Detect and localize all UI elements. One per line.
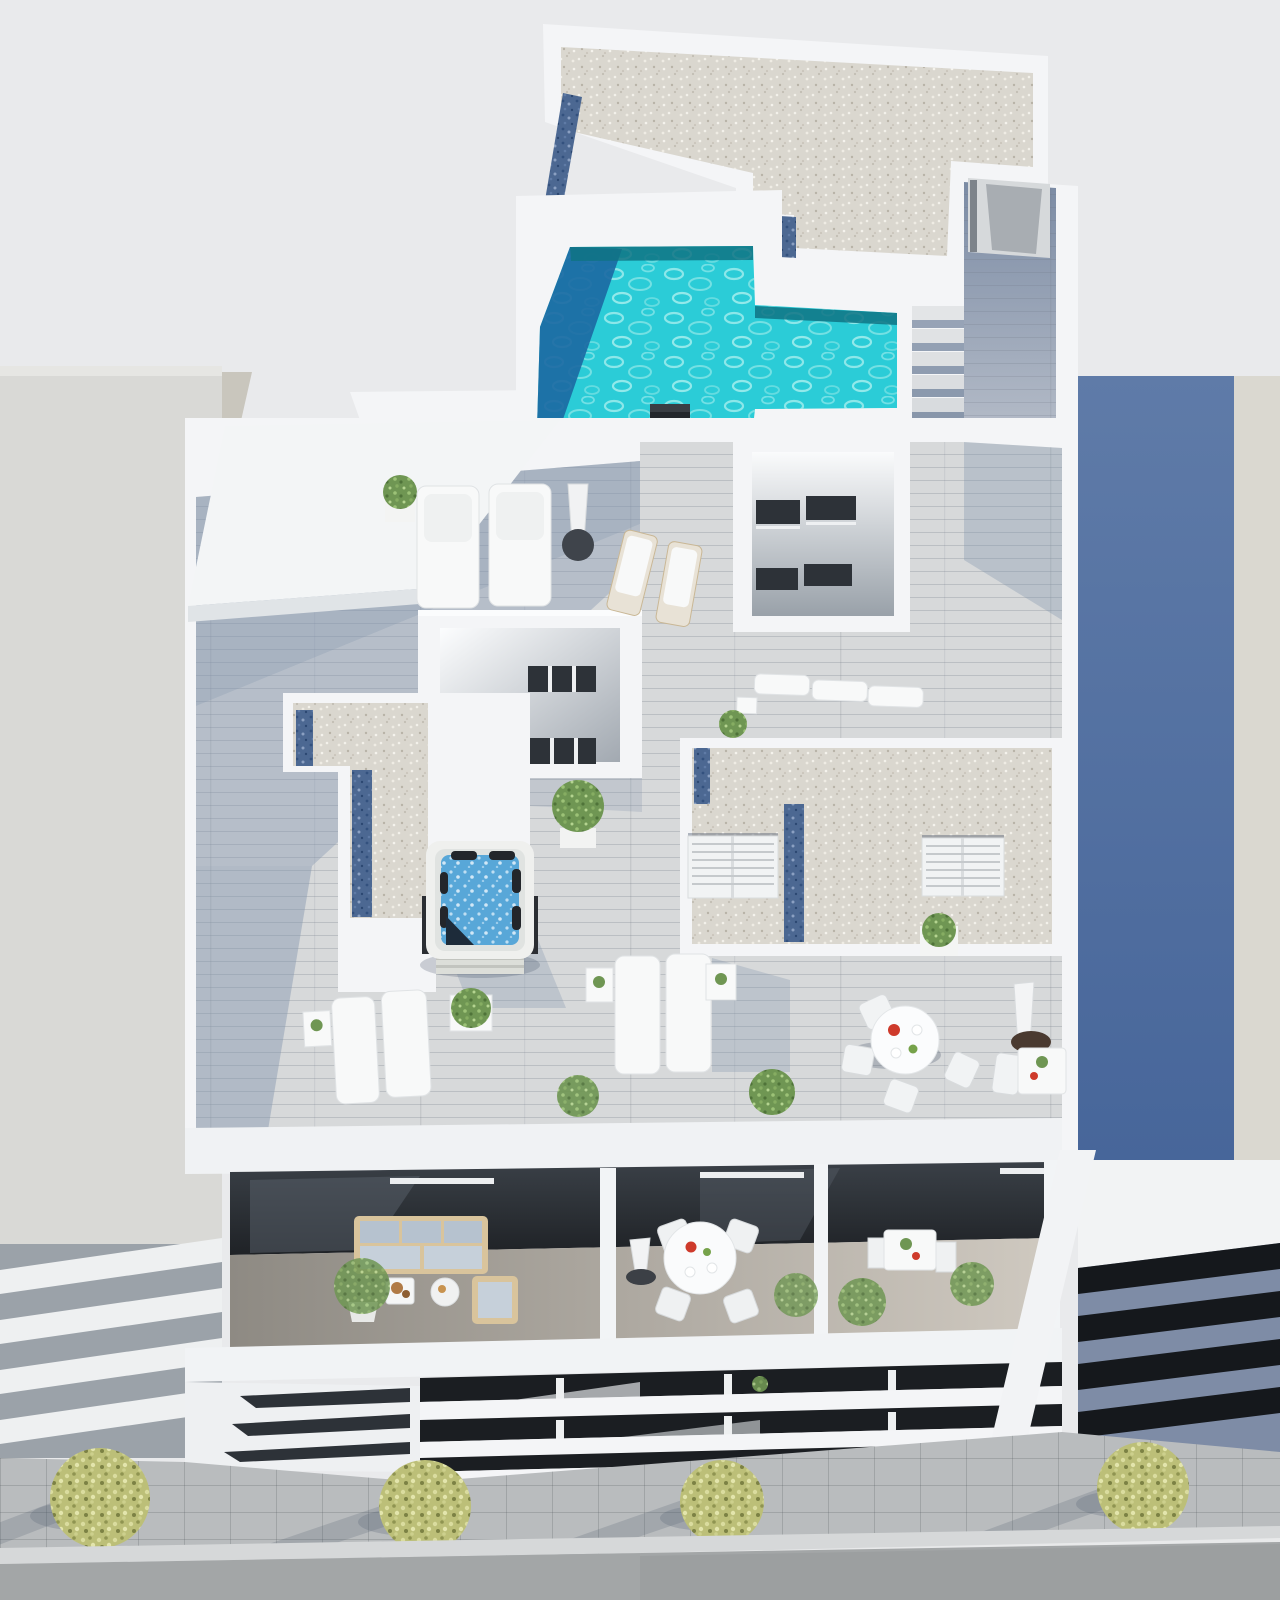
table-green-item [909,1045,918,1054]
balcony-shrub [950,1262,994,1306]
bistro-chair [936,1242,956,1272]
balcony-divider [600,1168,616,1340]
handrail [700,1172,804,1178]
table-plant [593,976,605,988]
table-red-item [888,1024,900,1036]
round-dining-table [871,1006,939,1074]
lower-roof-blue-strip-2 [784,804,804,942]
bistro-table [1018,1048,1066,1094]
sun-lounger-4 [812,680,868,702]
right-building-glass-stripes [1078,1243,1280,1458]
right-neighbor-building [1078,376,1280,1458]
right-building-shadow-wall [1078,376,1234,1160]
street-tree [680,1460,764,1544]
balcony-shrub [774,1273,818,1317]
table-green-item [900,1238,912,1250]
potted-plant [719,710,747,738]
tray-table [736,697,757,714]
street-tree [379,1460,471,1552]
lower-roof-blue-strip-1 [694,748,710,804]
courtyard-window-2 [806,496,856,520]
sun-lounger-7 [666,954,711,1072]
louvered-shutter-right [922,835,1004,896]
sun-lounger-9 [381,990,431,1098]
table-red-item [686,1242,697,1253]
potted-plant [451,988,491,1028]
pool-left-roof-band [350,390,545,420]
parasol-round-base [562,529,594,561]
sun-lounger-8 [331,996,379,1104]
louvered-shutter-left [688,833,778,898]
table-green-item [1036,1056,1048,1068]
sun-lounger-6 [615,956,660,1074]
skylight-window-lower [530,738,596,764]
potted-plant [552,780,604,832]
table-green-item [703,1248,711,1256]
street-tree [1097,1442,1189,1534]
lower-balcony-plant [752,1376,768,1392]
table-plant [715,973,727,985]
balcony-divider [814,1164,828,1334]
left-building-roof-edge [0,366,222,376]
potted-plant [749,1069,795,1115]
balcony-level [185,1118,1070,1348]
parasol-base [626,1269,656,1285]
table-red-item [912,1252,920,1260]
blue-gravel-strip-pool-top-2 [780,216,796,258]
potted-plant [557,1075,599,1117]
skylight-window-upper [528,666,596,692]
dining-chair [841,1044,875,1077]
lower-gravel-roof [680,738,1064,956]
aerial-render [0,0,1280,1600]
courtyard-window-4 [804,564,852,586]
potted-plant [383,475,417,509]
potted-plant [922,913,956,947]
handrail [390,1178,494,1184]
pool-north-edge [570,246,753,261]
roof-access-door [986,184,1042,254]
right-building-sunlit-strip [1234,376,1280,1160]
sun-lounger-3 [754,674,810,696]
render-canvas [0,0,1280,1600]
round-side-table [431,1278,459,1306]
courtyard-box [733,436,910,632]
jacuzzi-hot-tub [420,841,540,978]
rooftop-terrace [185,418,1078,1150]
balcony-tree [334,1258,390,1314]
table-red-item [1030,1072,1038,1080]
balcony-shrub [838,1278,886,1326]
planter-blue-strip-1 [296,710,313,766]
courtyard-window-1 [756,500,800,524]
street-tree [50,1448,150,1548]
round-dining-table [664,1222,736,1294]
bistro-table [884,1230,936,1270]
planter-blue-strip-2 [352,770,372,917]
courtyard-window-3 [756,568,798,590]
sun-lounger-5 [868,686,924,708]
